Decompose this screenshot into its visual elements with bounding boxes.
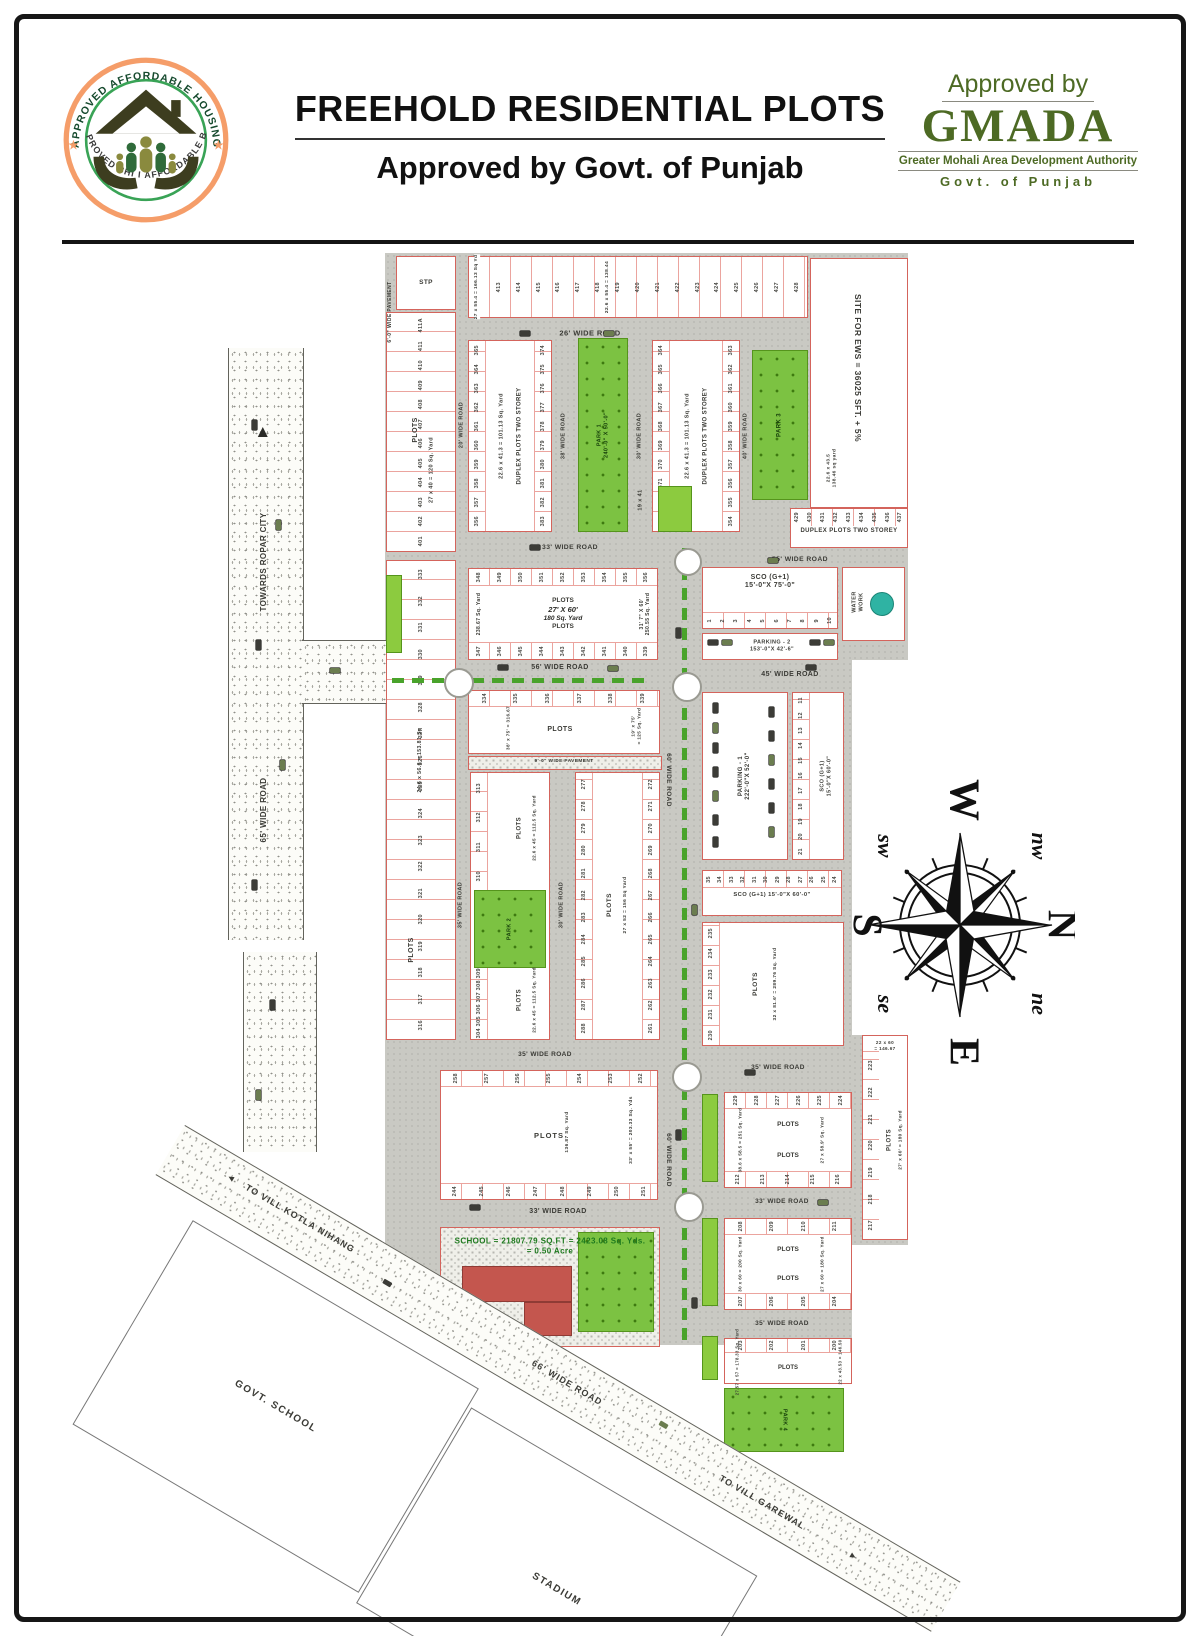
plot-number: 245: [479, 1186, 485, 1196]
road-label-60b: 60' WIDE ROAD: [664, 1133, 672, 1187]
plot-number: 424: [714, 282, 720, 292]
plot-number: 211: [832, 1221, 838, 1231]
block334-numbers: 334335336337338339: [469, 691, 659, 707]
plot-number: 360: [728, 402, 734, 412]
plot-number: 227: [775, 1095, 781, 1105]
plot-number: 374: [540, 345, 546, 355]
plot-number: 217: [868, 1220, 874, 1230]
plot-number: 313: [476, 783, 482, 793]
plots-block-204: 208209210211 PLOTS PLOTS 207206205204: [724, 1218, 852, 1310]
plot-number: 338: [608, 693, 614, 703]
central-plots-block: 348349350351352353354355356 PLOTS 27' X …: [468, 568, 658, 660]
plot-number: 13: [798, 727, 804, 734]
left-strip2-size-label: 24.6 x 56.6 = 153.81 Sq: [417, 727, 423, 792]
plot-number: 201: [801, 1340, 807, 1350]
compass-sw-label: sw: [873, 833, 898, 858]
plot-number: 29: [775, 876, 781, 883]
road-label-65: 65' WIDE ROAD: [259, 778, 269, 843]
affordable-housing-badge-icon: APPROVED AFFORDABLE HOUSING APPROVED BHI…: [62, 56, 230, 224]
plot-number: 261: [648, 1023, 654, 1033]
plot-number: 404: [418, 477, 424, 487]
plot-number: 349: [497, 572, 503, 582]
central-right-size: 31' 7" X 60' 250.55 Sq. Yard: [639, 593, 651, 636]
plot-number: 20: [798, 833, 804, 840]
park-3-label: PARK 3: [776, 413, 783, 437]
plot-number: 206: [769, 1296, 775, 1306]
road-label-35-low: 35' WIDE ROAD: [755, 1320, 809, 1328]
plot-number: 1: [707, 619, 713, 622]
plot-number: 219: [868, 1167, 874, 1177]
green-patch: [658, 486, 692, 532]
plot-number: 207: [738, 1296, 744, 1306]
plot-number: 287: [581, 1000, 587, 1010]
plot-number: 331: [418, 622, 424, 632]
road-label-45: 45' WIDE ROAD: [761, 671, 818, 679]
plot-number: 256: [515, 1073, 521, 1083]
plot-number: 35: [706, 876, 712, 883]
sco-60-right-stalls: 1112131415161718192021: [793, 693, 810, 859]
road-label-60: 60' WIDE ROAD: [664, 753, 672, 807]
plot-number: 225: [817, 1095, 823, 1105]
plot-number: 427: [774, 282, 780, 292]
block200-numbers: 203202201200: [725, 1339, 851, 1353]
plot-number: 415: [536, 282, 542, 292]
plot-number: 362: [728, 364, 734, 374]
plot-number: 21: [798, 848, 804, 855]
plot-number: 265: [648, 934, 654, 944]
compass-nw-label: nw: [1027, 833, 1052, 860]
plot-number: 208: [738, 1221, 744, 1231]
plot-number: 360: [474, 440, 480, 450]
sco-60-right-block: 1112131415161718192021: [792, 692, 844, 860]
sco-75-stalls: 12345678910: [703, 612, 837, 628]
plot-number: 426: [754, 282, 760, 292]
plot-number: 222: [868, 1087, 874, 1097]
site-plan-page: APPROVED AFFORDABLE HOUSING APPROVED BHI…: [0, 0, 1200, 1636]
road-label-35-right: 35' WIDE ROAD: [751, 1064, 805, 1072]
plot-number: 202: [769, 1340, 775, 1350]
park-4-label: PARK 4: [781, 1409, 788, 1431]
badge-star-right-icon: ★: [212, 137, 224, 152]
plots-block-244: 258257256255254253252 PLOTS 244245246247…: [440, 1070, 658, 1200]
stp-label: STP: [419, 279, 433, 287]
sco-60-lower-label: SCO (G+1) 15'-0"X 60'-0": [703, 892, 841, 899]
duplex-b-east-numbers: 363362361360359358357356355354: [722, 341, 739, 531]
duplex-a-size-label: 22.6 x 41.3 = 101.13 Sq. Yard: [499, 393, 506, 479]
block204-plots-top: PLOTS: [777, 1246, 799, 1253]
plot-number: 270: [648, 823, 654, 833]
badge-star-left-icon: ★: [67, 137, 79, 152]
block204-top-numbers: 208209210211: [725, 1219, 851, 1235]
block224-top-numbers: 229228227226225224: [725, 1093, 851, 1109]
plot-number: 10: [827, 617, 833, 624]
gmada-approved-by: Approved by: [942, 70, 1094, 102]
plot-number: 26: [809, 876, 815, 883]
strip217-plots-label: PLOTS: [886, 1129, 893, 1151]
tall-plots-label: PLOTS: [606, 893, 614, 917]
plot-number: 250: [614, 1186, 620, 1196]
plot-number: 350: [518, 572, 524, 582]
plot-number: 337: [577, 693, 583, 703]
plot-number: 364: [658, 345, 664, 355]
plot-number: 235: [708, 928, 714, 938]
plot-number: 221: [868, 1114, 874, 1124]
plot-number: 246: [506, 1186, 512, 1196]
plot-number: 421: [655, 282, 661, 292]
plot-number: 307: [476, 992, 482, 1002]
plot-strip-412-428: 4124134144154164174184194204214224234244…: [468, 256, 808, 318]
ews-sub-label: 22.6 x 43.5 138.46 sq yard: [826, 449, 838, 488]
gmada-full-name: Greater Mohali Area Development Authorit…: [898, 155, 1138, 171]
plot-number: 379: [540, 440, 546, 450]
plot-number: 434: [859, 512, 865, 522]
plot-number: 356: [643, 572, 649, 582]
pavement-9-label: 9'-0" WIDE PAVEMENT: [534, 759, 593, 765]
towards-ropar-label: TOWARDS ROPAR CITY: [259, 513, 269, 612]
school-building: [462, 1266, 572, 1302]
plot-number: 365: [474, 345, 480, 355]
block244-plots-label: PLOTS: [534, 1131, 564, 1140]
ews-site-label: SITE FOR EWS = 36025 SFT. + 5%: [853, 294, 863, 442]
plot-number: 27: [798, 876, 804, 883]
plot-number: 381: [540, 478, 546, 488]
block204-bottom-numbers: 207206205204: [725, 1293, 851, 1309]
plot-number: 231: [708, 1009, 714, 1019]
plot-number: 336: [545, 693, 551, 703]
plot-number: 4: [747, 619, 753, 622]
sco-60-right-label: SCO (G+1) 15'-0"X 60'-0": [819, 756, 832, 797]
plot-number: 272: [648, 779, 654, 789]
road-label-35-left: 35' WIDE ROAD: [518, 1051, 572, 1059]
sco-75-block: SCO (G+1) 15'-0"X 75'-0" 12345678910: [702, 567, 838, 629]
left-strip-size-label: 27 x 40 = 120 Sq. Yard: [429, 437, 436, 503]
plots-230-word: PLOTS: [752, 972, 760, 996]
plot-number: 5: [760, 619, 766, 622]
plot-number: 355: [728, 497, 734, 507]
plot-number: 19: [798, 818, 804, 825]
plot-number: 306: [476, 1004, 482, 1014]
plot-number: 430: [807, 512, 813, 522]
plot-number: 17: [798, 787, 804, 794]
tree-strip: [702, 1094, 718, 1182]
plot-number: 366: [658, 383, 664, 393]
road-label-38: 38' WIDE ROAD: [561, 413, 568, 459]
tall-east-numbers: 272271270269268267266265264263262261: [642, 773, 659, 1039]
plot-number: 7: [787, 619, 793, 622]
plot-number: 347: [476, 646, 482, 656]
plot-number: 11: [798, 697, 804, 704]
plot-number: 323: [418, 835, 424, 845]
tall-west-numbers: 277278279280281282283284285286287288: [576, 773, 593, 1039]
plot-number: 279: [581, 823, 587, 833]
plot-number: 361: [474, 421, 480, 431]
plot-number: 361: [728, 383, 734, 393]
park-2-label: PARK 2: [507, 918, 514, 940]
roundabout: [674, 1192, 704, 1222]
plot-number: 414: [516, 282, 522, 292]
road-label-33-low: 33' WIDE ROAD: [755, 1198, 809, 1206]
plot-number: 218: [868, 1194, 874, 1204]
plot-number: 358: [474, 478, 480, 488]
top-size2-label: 22.6 x 55.4 = 138.44: [605, 261, 611, 313]
sco-60-lower-stalls: 353433323130292827262524: [703, 871, 841, 888]
block224-plots-bottom: PLOTS: [777, 1152, 799, 1159]
header-titles: FREEHOLD RESIDENTIAL PLOTS Approved by G…: [270, 88, 910, 186]
road-label-55: 55' WIDE ROAD: [772, 556, 828, 564]
plot-number: 249: [587, 1186, 593, 1196]
block244-bottom-numbers: 244245246247248249250251: [441, 1183, 657, 1199]
plot-number: 410: [418, 360, 424, 370]
plot-number: 24: [832, 876, 838, 883]
central-top-numbers: 348349350351352353354355356: [469, 569, 657, 586]
plot-number: 419: [615, 282, 621, 292]
stadium-label: STADIUM: [530, 1571, 583, 1609]
compass-east-label: E: [940, 1038, 986, 1066]
green-verge: [386, 575, 402, 653]
car-icon: [382, 1279, 392, 1288]
plot-number: 25: [821, 876, 827, 883]
plot-number: 328: [418, 702, 424, 712]
plot-number: 312: [476, 812, 482, 822]
plot-number: 382: [540, 497, 546, 507]
plot-number: 363: [728, 345, 734, 355]
plot-number: 281: [581, 868, 587, 878]
mid-west-plots-bottom: PLOTS: [516, 989, 523, 1011]
mid-block-east: 277278279280281282283284285286287288 272…: [575, 772, 660, 1040]
school-label: SCHOOL = 21807.79 SQ.FT = 2423.08 Sq. Yd…: [443, 1236, 658, 1255]
plot-number: 355: [623, 572, 629, 582]
plot-number: 356: [474, 516, 480, 526]
plot-number: 334: [482, 693, 488, 703]
plot-number: 359: [474, 459, 480, 469]
plot-number: 435: [872, 512, 878, 522]
plot-number: 411A: [418, 318, 424, 332]
plot-number: 234: [708, 948, 714, 958]
duplex-a-label: DUPLEX PLOTS TWO STOREY: [516, 387, 523, 484]
plot-number: 340: [623, 646, 629, 656]
plot-number: 6: [774, 619, 780, 622]
roundabout: [674, 548, 702, 576]
plot-number: 345: [518, 646, 524, 656]
plot-number: 346: [497, 646, 503, 656]
plot-number: 311: [476, 842, 482, 852]
block334-plots-label: PLOTS: [547, 726, 572, 734]
road-label-20: 20' WIDE ROAD: [459, 402, 466, 448]
plot-number: 280: [581, 845, 587, 855]
duplex-block-c: 429430431432433434435436437 DUPLEX PLOTS…: [790, 508, 908, 548]
plot-number: 251: [641, 1186, 647, 1196]
plot-number: 423: [695, 282, 701, 292]
water-tank-icon: [870, 592, 894, 616]
plot-number: 428: [794, 282, 800, 292]
plot-number: 377: [540, 402, 546, 412]
plot-number: 33: [729, 876, 735, 883]
plot-number: 342: [581, 646, 587, 656]
plot-number: 378: [540, 421, 546, 431]
road-label-30-mid: 30' WIDE ROAD: [559, 882, 566, 928]
plot-number: 330: [418, 649, 424, 659]
plots-230-size: 32 x 81.6' = 289.76 Sq. Yard: [773, 948, 779, 1021]
compass-south-label: S: [845, 913, 889, 936]
plot-number: 354: [728, 516, 734, 526]
plot-number: 2: [720, 619, 726, 622]
plot-number: 244: [452, 1186, 458, 1196]
plot-number: 318: [418, 967, 424, 977]
plot-number: 262: [648, 1000, 654, 1010]
plot-number: 271: [648, 801, 654, 811]
block200-plots-label: PLOTS: [778, 1365, 798, 1371]
plot-number: 322: [418, 861, 424, 871]
plot-number: 402: [418, 516, 424, 526]
plot-number: 383: [540, 516, 546, 526]
park-1-label: PARK 1 240'-0" X 50'-0": [596, 412, 609, 458]
plot-number: 309: [476, 968, 482, 978]
plot-number: 248: [560, 1186, 566, 1196]
block200-size2: 22 x 43.53 = 146.50: [837, 1340, 842, 1385]
plot-number: 226: [796, 1095, 802, 1105]
road-label-33-school: 33' WIDE ROAD: [529, 1208, 586, 1216]
plot-number: 255: [546, 1073, 552, 1083]
block224-size1: 38.6 x 58.5 = 251 Sq. Yard: [737, 1108, 742, 1173]
plot-number: 352: [560, 572, 566, 582]
plots-230-numbers: 235234233232231230: [703, 923, 720, 1045]
central-plots-word-bottom: PLOTS: [552, 623, 574, 631]
block204-plots-bottom: PLOTS: [777, 1275, 799, 1282]
central-dim-label: 27' X 60': [548, 605, 577, 614]
plot-number: 359: [728, 421, 734, 431]
plot-number: 333: [418, 569, 424, 579]
plot-number: 269: [648, 845, 654, 855]
duplex-block-a: 365364363362361360359358357356 374375376…: [468, 340, 552, 532]
plot-number: 365: [658, 364, 664, 374]
plot-number: 232: [708, 989, 714, 999]
mid-west-size-top: 22.6 x 45 = 112.5 Sq. Yard: [531, 795, 537, 861]
roundabout: [672, 1062, 702, 1092]
plot-number: 411: [418, 341, 424, 351]
roundabout: [672, 672, 702, 702]
plot-number: 413: [496, 282, 502, 292]
plots-block-224: 229228227226225224 PLOTS PLOTS 212213214…: [724, 1092, 852, 1188]
plot-number: 32: [740, 876, 746, 883]
block200-size1: 27.57 x 57 = 178.33 Sq. Yard: [734, 1329, 739, 1395]
kotla-arrow-icon: ◄: [225, 1171, 239, 1185]
plot-number: 339: [640, 693, 646, 703]
block334-size2: 19' x 75' = 125 Sq. Yard: [631, 708, 642, 745]
block224-size2: 27 x 58.9' Sq. Yard: [819, 1117, 824, 1164]
plot-number: 286: [581, 978, 587, 988]
plot-number: 429: [794, 512, 800, 522]
water-works-label: WATER WORK: [851, 591, 864, 612]
plot-number: 380: [540, 459, 546, 469]
approach-road-lower: [243, 952, 317, 1152]
plot-number: 224: [838, 1095, 844, 1105]
plot-number: 405: [418, 458, 424, 468]
plot-number: 319: [418, 941, 424, 951]
plot-number: 357: [474, 497, 480, 507]
block244-size2: 33' x 55' = 203.33 Sq. Yds: [629, 1096, 635, 1164]
strip217-size-label: 27' x 60' = 180 Sq. Yard: [897, 1110, 903, 1170]
duplex-b-label: DUPLEX PLOTS TWO STOREY: [702, 387, 709, 484]
central-area-label: 180 Sq. Yard: [544, 615, 583, 623]
sco-75-label: SCO (G+1) 15'-0"X 75'-0": [703, 574, 837, 591]
plot-number: 370: [658, 459, 664, 469]
compass-ne-label: ne: [1027, 993, 1052, 1015]
duplex-c-label: DUPLEX PLOTS TWO STOREY: [791, 528, 907, 535]
compass-rose-icon: W N E S sw nw se ne: [845, 770, 1075, 1080]
plot-number: 332: [418, 596, 424, 606]
plot-number: 308: [476, 980, 482, 990]
plot-number: 267: [648, 890, 654, 900]
parking-1-label: PARKING - 1 222'-0"X 52'-0": [738, 752, 752, 800]
gmada-logo: Approved by GMADA Greater Mohali Area De…: [898, 70, 1138, 189]
plot-number: 257: [484, 1073, 490, 1083]
plot-number: 252: [638, 1073, 644, 1083]
plot-number: 367: [658, 402, 664, 412]
page-subtitle: Approved by Govt. of Punjab: [270, 150, 910, 186]
plots-block-200: 203202201200 PLOTS: [724, 1338, 852, 1384]
plot-number: 420: [635, 282, 641, 292]
road-label-56: 56' WIDE ROAD: [531, 664, 588, 672]
label-19x41: 19 x 41: [638, 489, 645, 510]
plot-number: 8: [800, 619, 806, 622]
block224-bottom-numbers: 212213214215216: [725, 1171, 851, 1187]
plot-number: 229: [733, 1095, 739, 1105]
plot-number: 358: [728, 440, 734, 450]
compass-north-label: N: [1038, 910, 1075, 940]
plot-number: 356: [728, 478, 734, 488]
plot-number: 285: [581, 956, 587, 966]
compass-west-label: W: [940, 779, 986, 821]
median-56: [472, 678, 648, 683]
duplex-a-west-numbers: 365364363362361360359358357356: [469, 341, 486, 531]
sco-60-lower-block: 353433323130292827262524 SCO (G+1) 15'-0…: [702, 870, 842, 916]
govt-school-label: GOVT. SCHOOL: [233, 1378, 319, 1435]
plot-number: 278: [581, 801, 587, 811]
tree-strip: [702, 1336, 718, 1380]
tree-strip: [702, 1218, 718, 1306]
plot-number: 230: [708, 1030, 714, 1040]
plot-number: 228: [754, 1095, 760, 1105]
plot-number: 220: [868, 1140, 874, 1150]
plot-number: 401: [418, 536, 424, 546]
block224-plots-top: PLOTS: [777, 1121, 799, 1128]
plot-number: 339: [643, 646, 649, 656]
block204-size1: 30 x 60 = 200 Sq. Yard: [737, 1236, 742, 1292]
plot-number: 209: [769, 1221, 775, 1231]
plot-number: 14: [798, 742, 804, 749]
plot-number: 12: [798, 712, 804, 719]
plot-number: 310: [476, 871, 482, 881]
plot-number: 34: [717, 876, 723, 883]
plot-number: 233: [708, 969, 714, 979]
plot-number: 351: [539, 572, 545, 582]
plot-number: 205: [801, 1296, 807, 1306]
plot-number: 344: [539, 646, 545, 656]
road-label-30: 30' WIDE ROAD: [637, 413, 644, 459]
plot-number: 368: [658, 421, 664, 431]
plot-number: 316: [418, 1020, 424, 1030]
header-divider: [62, 240, 1134, 244]
plot-number: 288: [581, 1023, 587, 1033]
block334-size1: 38' x 75' = 316.67: [505, 706, 511, 750]
plot-number: 354: [602, 572, 608, 582]
plot-number: 284: [581, 934, 587, 944]
plot-number: 320: [418, 914, 424, 924]
plot-number: 28: [786, 876, 792, 883]
plot-number: 432: [833, 512, 839, 522]
plot-number: 268: [648, 868, 654, 878]
duplex-b-size-label: 22.6 x 41.3 = 101.13 Sq. Yard: [685, 393, 692, 479]
